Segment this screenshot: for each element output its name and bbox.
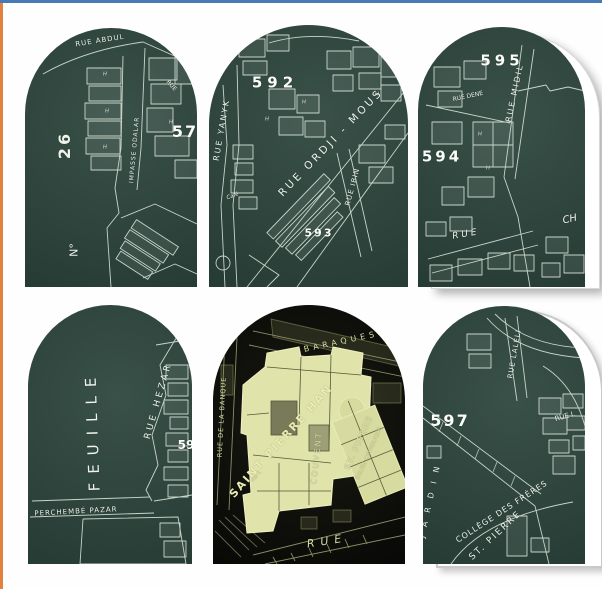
house-glyph: H <box>478 132 482 138</box>
map-linework <box>28 305 192 564</box>
plate-number: 592 <box>252 76 298 91</box>
house-glyph: H <box>302 100 306 106</box>
sheet-word-feuille: FEUILLE <box>83 368 102 491</box>
map-sheet-collage: RUE ABDUL RUE 57 26 N° IMPASSE ODALAR H … <box>0 0 602 589</box>
map-tile-26[interactable]: RUE ABDUL RUE 57 26 N° IMPASSE ODALAR H … <box>25 28 197 287</box>
map-tile-feuille[interactable]: FEUILLE RUE HEZAR PERCHEMBÉ PAZAR 59 <box>28 305 192 564</box>
map-linework <box>25 28 197 287</box>
sheet-number-prefix: N° <box>69 243 80 257</box>
plate-number-partial: 59 <box>178 439 192 451</box>
plate-number: 597 <box>430 413 469 429</box>
house-glyph: H <box>103 72 107 78</box>
house-glyph: H <box>105 109 109 115</box>
top-border-line <box>0 0 602 3</box>
plate-number: 594 <box>422 150 462 165</box>
house-glyph: H <box>265 117 269 123</box>
map-tile-saint-pierre[interactable]: RUE DE LA BANQUE BARAQUES SAINT PIERRE H… <box>213 305 405 564</box>
map-tile-595[interactable]: 595 594 RUE MIDIL RUE DENE RUE CH H H <box>418 27 585 287</box>
sheet-number: 26 <box>57 131 73 159</box>
map-tile-592[interactable]: 592 593 RUE YANYK RUE ORDJI - MOUS RUE I… <box>209 25 408 287</box>
house-glyph: H <box>103 145 107 151</box>
map-tile-597[interactable]: 597 RUE LALELI RUE L COLLÈGE DES FRÈRES … <box>423 306 585 564</box>
house-glyph: H <box>169 120 173 126</box>
plate-number-partial: 57 <box>172 124 197 140</box>
left-border-line <box>0 3 3 589</box>
house-glyph: H <box>375 92 379 98</box>
house-glyph: H <box>486 166 490 172</box>
plate-number: 593 <box>305 228 334 239</box>
